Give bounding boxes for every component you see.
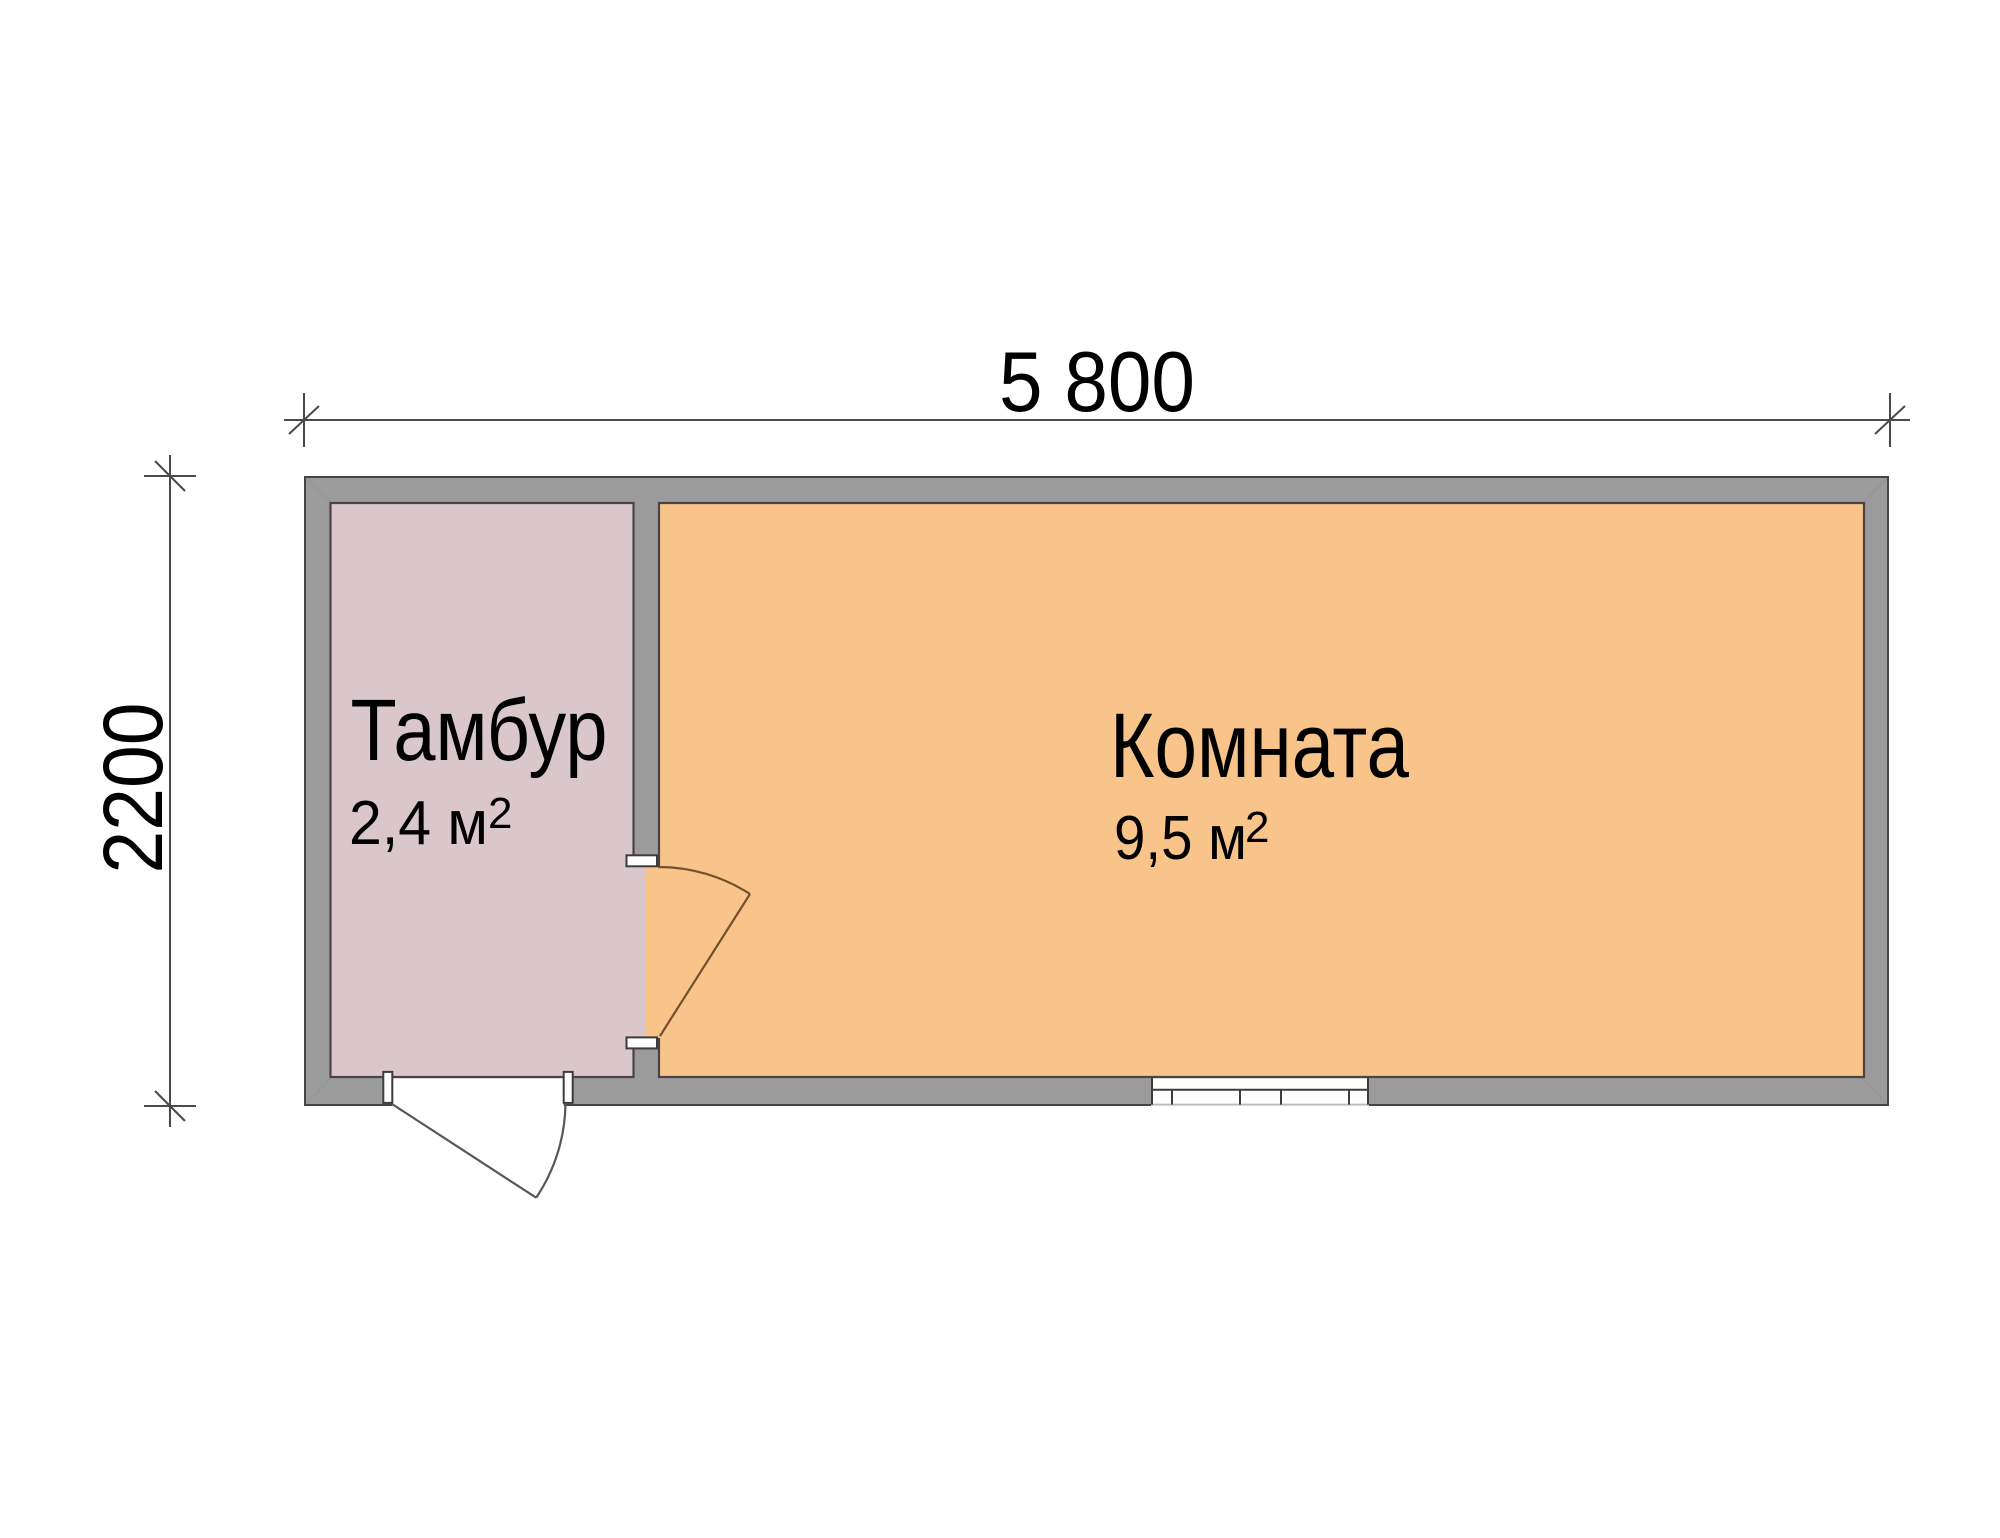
svg-text:2: 2 [488,789,512,838]
svg-text:9,5 м: 9,5 м [1114,804,1247,873]
svg-text:2200: 2200 [86,703,180,874]
svg-text:2,4 м: 2,4 м [349,789,488,858]
svg-text:Комната: Комната [1110,695,1410,797]
svg-text:5 800: 5 800 [999,335,1195,430]
svg-text:2: 2 [1245,803,1269,852]
svg-text:Тамбур: Тамбур [351,682,608,779]
